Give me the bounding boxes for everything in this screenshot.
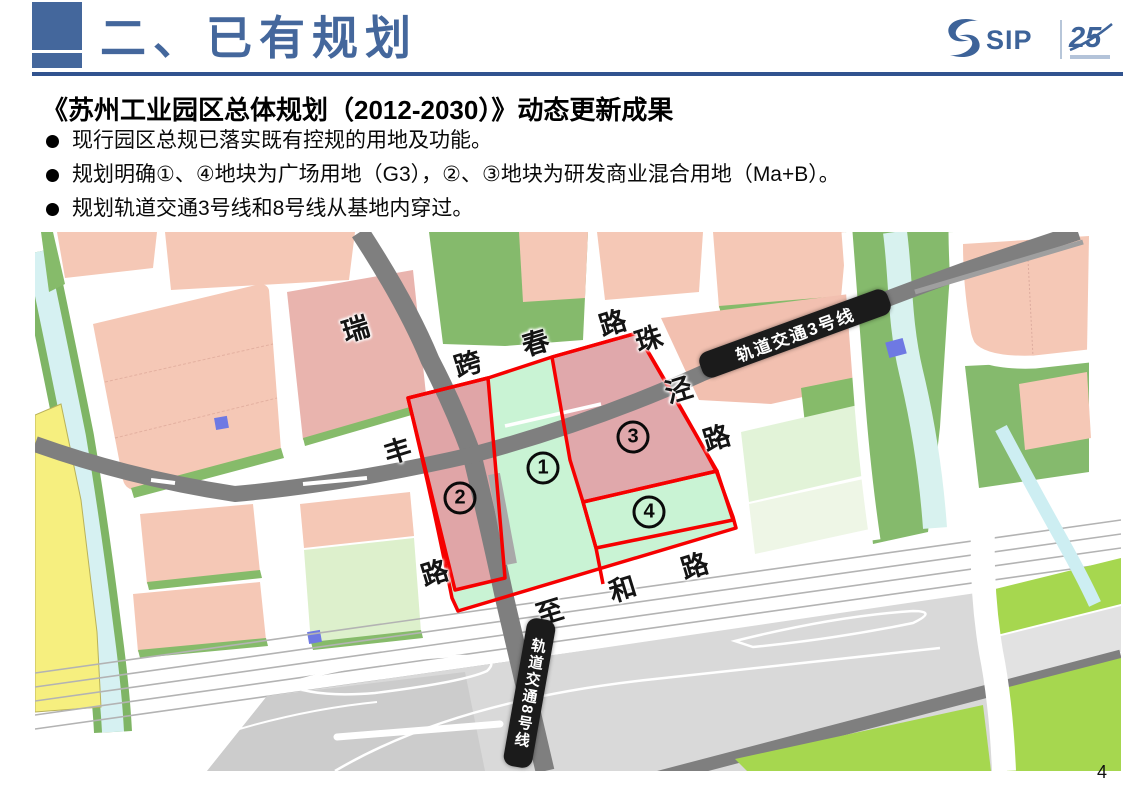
bullet-text: 现行园区总规已落实既有控规的用地及功能。 <box>72 128 492 153</box>
bullet-dot-icon <box>46 169 59 182</box>
bullet-item: 规划明确①、④地块为广场用地（G3），②、③地块为研发商业混合用地（Ma+B）。 <box>46 162 1086 187</box>
plot-marker-1: 1 <box>527 452 560 485</box>
bullet-item: 现行园区总规已落实既有控规的用地及功能。 <box>46 128 1086 153</box>
sip-swoosh-icon <box>948 19 979 57</box>
bullet-text: 规划轨道交通3号线和8号线从基地内穿过。 <box>72 196 473 221</box>
bullet-item: 规划轨道交通3号线和8号线从基地内穿过。 <box>46 196 1086 221</box>
page-title: 二、已有规划 <box>100 2 418 68</box>
title-decor-bar <box>32 53 82 68</box>
bullet-dot-icon <box>46 135 59 148</box>
plot-marker-3: 3 <box>617 421 650 454</box>
header-divider <box>32 72 1123 76</box>
slide-page: 二、已有规划 SIP 25 《苏州工业园区总体规划（2012-2030）》动态更… <box>0 0 1123 794</box>
bullet-list: 现行园区总规已落实既有控规的用地及功能。 规划明确①、④地块为广场用地（G3），… <box>46 128 1086 230</box>
section-heading: 《苏州工业园区总体规划（2012-2030）》动态更新成果 <box>42 90 673 127</box>
bullet-dot-icon <box>46 203 59 216</box>
anniversary-micro-text <box>1070 55 1110 59</box>
planning-map-canvas <box>35 232 1121 771</box>
page-number: 4 <box>1097 762 1107 783</box>
plot-marker-4: 4 <box>633 496 666 529</box>
planning-map: 瑞 跨 春 路 珠 泾 路 丰 路 至 和 路 1 2 3 4 轨道交通3号线 … <box>35 232 1121 771</box>
bullet-text: 规划明确①、④地块为广场用地（G3），②、③地块为研发商业混合用地（Ma+B）。 <box>72 162 840 187</box>
sip-logo: SIP 25 <box>942 14 1115 64</box>
plot-marker-2: 2 <box>444 482 477 515</box>
title-decor-square <box>32 2 82 50</box>
sip-logo-text: SIP <box>986 25 1033 55</box>
